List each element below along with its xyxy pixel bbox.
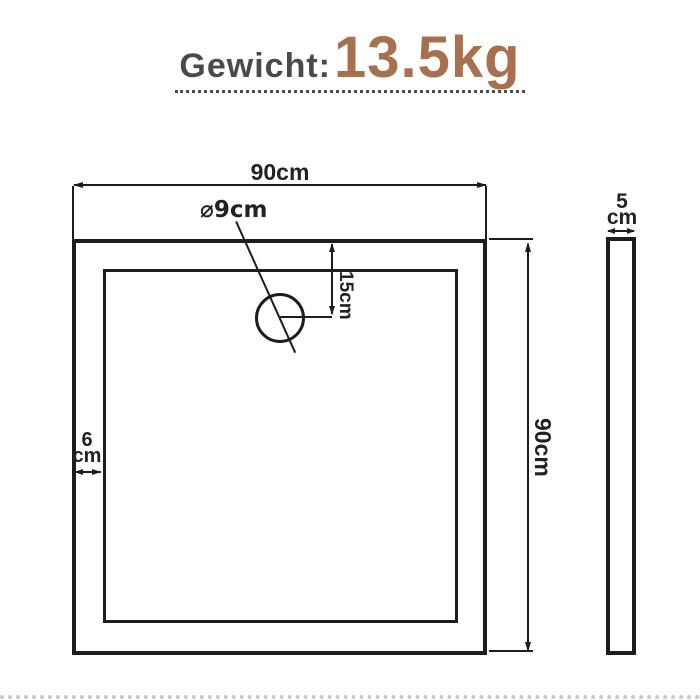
height-arrow-down	[525, 642, 531, 652]
height-arrow-up	[525, 242, 531, 252]
width-extension-line-left	[72, 186, 74, 239]
thickness-dimension-label: 5 cm	[597, 194, 647, 226]
tray-side-profile	[606, 237, 636, 655]
width-extension-line-right	[485, 186, 487, 239]
thickness-unit: cm	[597, 210, 647, 226]
width-dimension-label: 90cm	[230, 159, 330, 186]
drain-diameter-label: ⌀9cm	[200, 197, 267, 223]
product-dimension-image: Gewicht: 13.5kg ⌀9cm 90cm 90cm 15cm 6 cm…	[0, 0, 700, 700]
rim-unit: cm	[65, 448, 109, 464]
dotted-separator	[175, 90, 525, 93]
rim-arrow-right	[92, 469, 101, 475]
rim-dimension-label: 6 cm	[65, 432, 109, 464]
height-dimension-label: 90cm	[529, 418, 556, 477]
width-arrow-left	[73, 182, 83, 188]
width-arrow-right	[477, 182, 487, 188]
bottom-dotted-separator	[0, 695, 700, 699]
rim-arrow-left	[74, 469, 83, 475]
drain-center-line	[280, 316, 332, 318]
drain-offset-label: 15cm	[334, 271, 356, 320]
height-extension-line-top	[489, 238, 533, 240]
weight-label: Gewicht:	[179, 47, 331, 86]
drain-offset-arrow-up	[329, 243, 335, 252]
drain-offset-dimension-line	[331, 244, 333, 314]
weight-title: Gewicht: 13.5kg	[0, 24, 700, 91]
weight-value: 13.5kg	[334, 24, 521, 91]
